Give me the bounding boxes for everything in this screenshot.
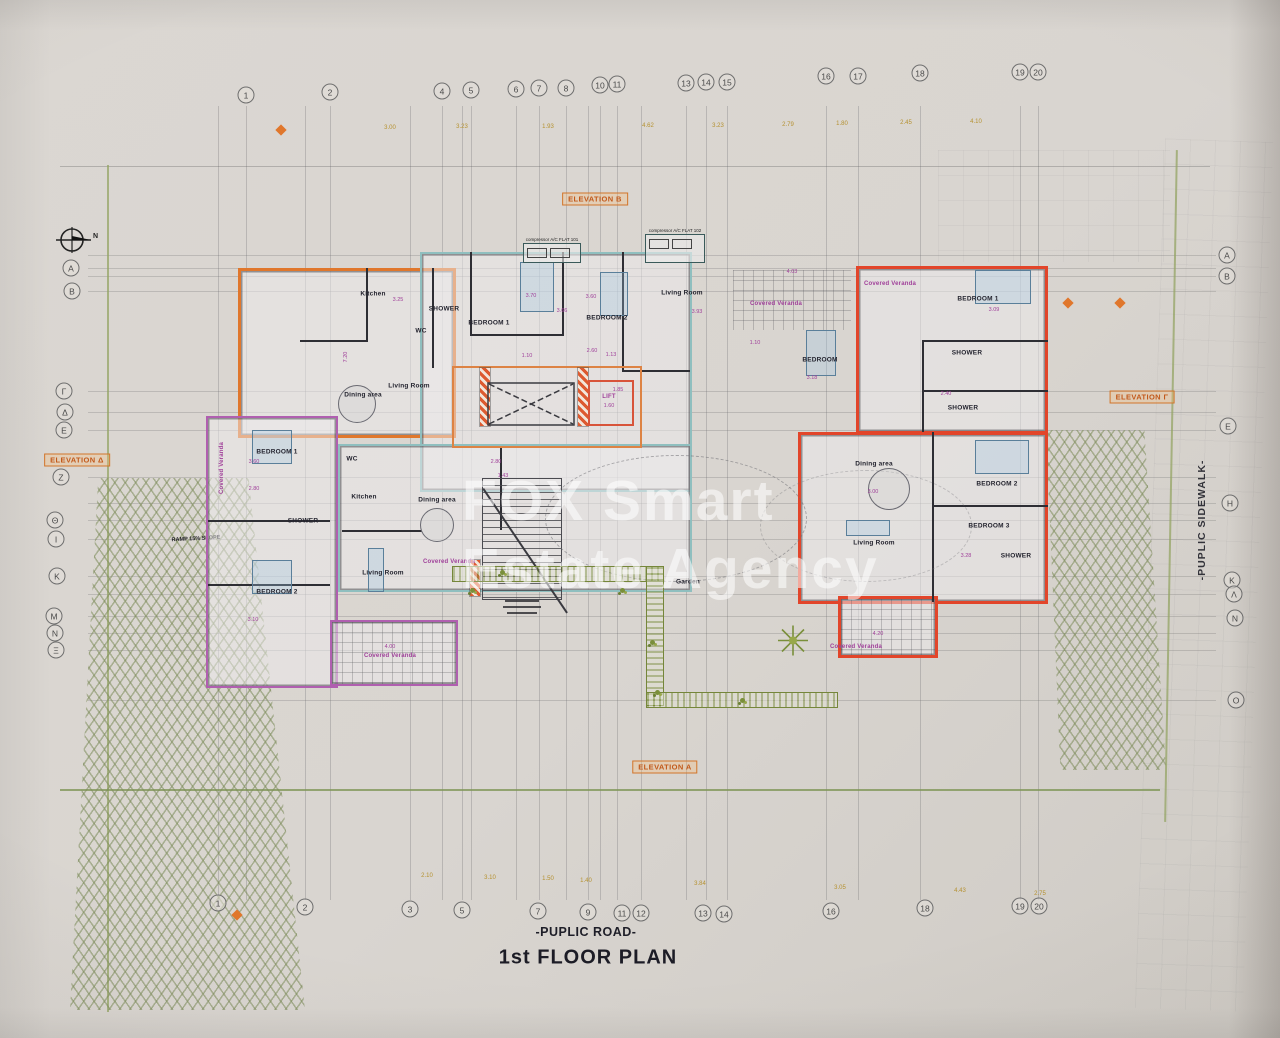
ac-unit-box: [649, 239, 669, 249]
ac-unit-box: [527, 248, 547, 258]
ac-unit-box: [672, 239, 692, 249]
ac-compressor-unit: compressor A/C FLAT 101: [523, 243, 581, 263]
ac-unit-label: compressor A/C FLAT 102: [649, 228, 702, 233]
watermark-line2: Estate Agency: [462, 536, 879, 602]
svg-text:N: N: [93, 233, 98, 240]
page-title: 1st FLOOR PLAN: [499, 947, 677, 970]
sidewalk-label: -PUPLIC SIDEWALK-: [1196, 460, 1208, 581]
road-label: -PUPLIC ROAD-: [536, 925, 637, 939]
ac-compressor-unit: compressor A/C FLAT 102: [645, 234, 705, 263]
ac-unit-label: compressor A/C FLAT 101: [526, 237, 579, 242]
ac-unit-box: [550, 248, 570, 258]
floor-plan-sheet: RAMP 15% SLOPE: [0, 0, 1280, 1038]
watermark-line1: FOX Smart: [462, 468, 775, 534]
north-arrow-icon: N: [55, 222, 99, 263]
